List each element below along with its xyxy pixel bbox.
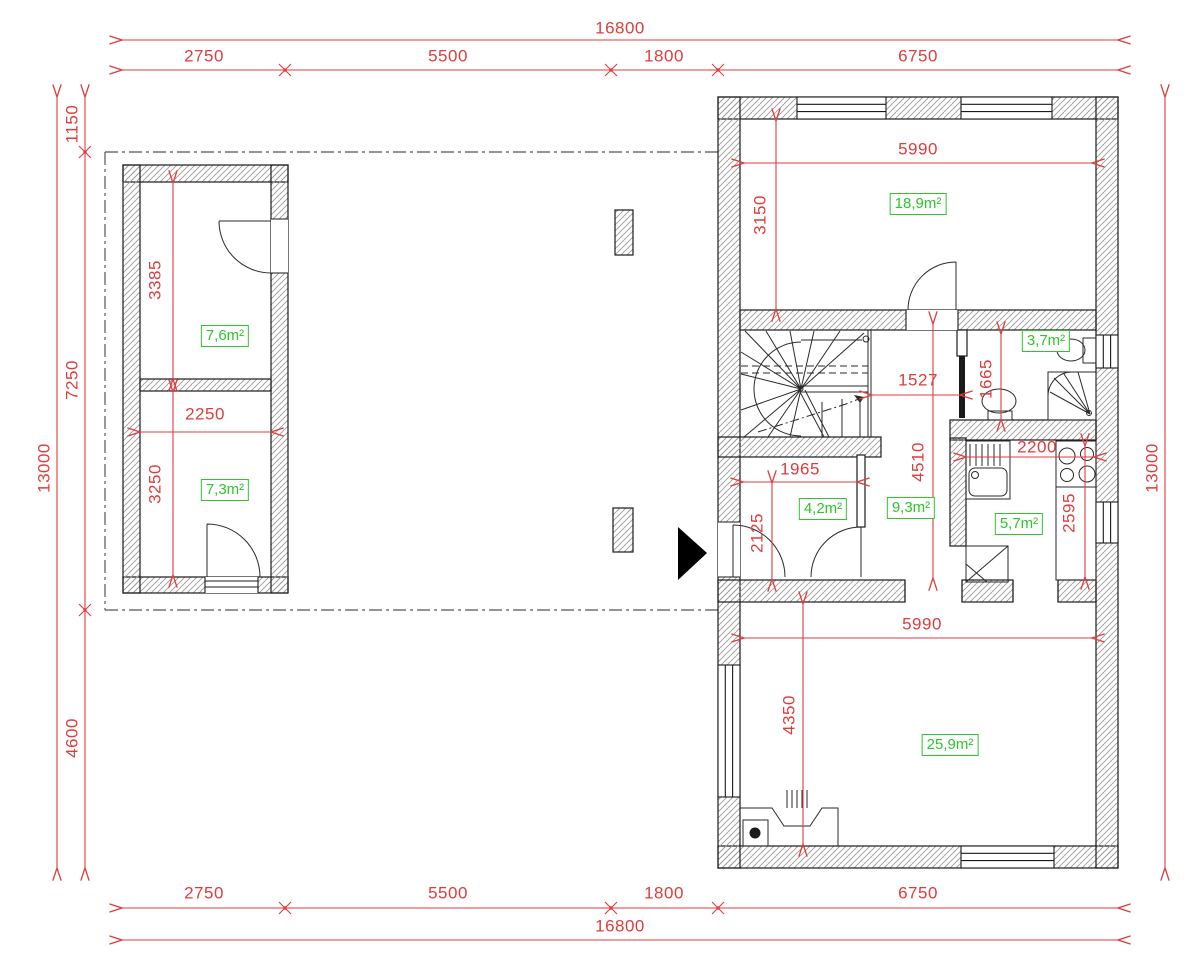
dim-left-seg-1: 1150 [64, 105, 81, 144]
dim-hall-depth: 4510 [910, 442, 927, 482]
dim-bottom-overall: 16800 [595, 918, 645, 935]
dim-storage-width: 2250 [185, 406, 225, 423]
dim-kitchen-width: 2200 [1017, 439, 1057, 456]
floor-plan-canvas: 16800 2750 5500 1800 6750 2750 5500 1800… [0, 0, 1200, 960]
stove-burner [1081, 448, 1094, 461]
dim-right-overall: 13000 [1144, 443, 1161, 493]
kitchen-sink-icon [969, 468, 1007, 496]
dim-top-seg-4: 6750 [898, 48, 938, 65]
chimney-flue-icon [750, 828, 761, 839]
dim-top-seg-1: 2750 [184, 48, 224, 65]
outbuilding-walls [123, 165, 288, 593]
pillar [613, 508, 633, 552]
area-label-hall: 9,3m² [887, 497, 935, 519]
plan-drawing [0, 0, 1200, 960]
dim-top-seg-3: 1800 [644, 48, 684, 65]
area-label-storage-top: 7,6m² [201, 325, 249, 347]
dim-kitchen-depth: 2595 [1061, 493, 1078, 533]
fireplace [740, 790, 838, 846]
dim-left-seg-3: 4600 [64, 718, 81, 758]
stove-burner [1061, 469, 1074, 482]
pillars [613, 210, 633, 552]
pillar [615, 210, 633, 255]
area-label-bathroom: 3,7m² [1022, 330, 1070, 352]
dim-entry-width: 1965 [780, 461, 820, 478]
dim-living-depth: 4350 [781, 695, 798, 735]
entrance-arrow-icon [678, 527, 707, 580]
dim-storage-bottom-depth: 3250 [147, 464, 164, 504]
dim-hall-width: 1527 [898, 372, 938, 389]
stove-burner [1079, 466, 1095, 482]
dim-top-seg-2: 5500 [428, 48, 468, 65]
dim-bottom-seg-4: 6750 [898, 885, 938, 902]
area-label-kitchen: 5,7m² [995, 513, 1043, 535]
area-label-living: 25,9m² [922, 734, 979, 756]
dim-bedroom-depth: 3150 [752, 195, 769, 235]
dim-bottom-seg-2: 5500 [428, 885, 468, 902]
dim-left-seg-2: 7250 [64, 360, 81, 400]
area-label-storage-bottom: 7,3m² [201, 479, 249, 501]
staircase [741, 330, 871, 437]
stove-burner [1059, 448, 1075, 464]
dim-storage-top-depth: 3385 [147, 260, 164, 300]
area-label-bedroom: 18,9m² [890, 193, 947, 215]
dim-bathroom-depth: 1665 [978, 359, 995, 399]
doors [733, 262, 965, 577]
dim-bedroom-width: 5990 [898, 141, 938, 158]
dim-top-overall: 16800 [595, 20, 645, 37]
bathroom-door-leaf [959, 356, 965, 418]
dim-entry-depth: 2125 [749, 513, 766, 553]
dim-living-width: 5990 [902, 616, 942, 633]
dim-bottom-seg-1: 2750 [184, 885, 224, 902]
area-label-entry: 4,2m² [799, 498, 847, 520]
dim-left-overall: 13000 [36, 443, 53, 493]
dim-bottom-seg-3: 1800 [644, 885, 684, 902]
